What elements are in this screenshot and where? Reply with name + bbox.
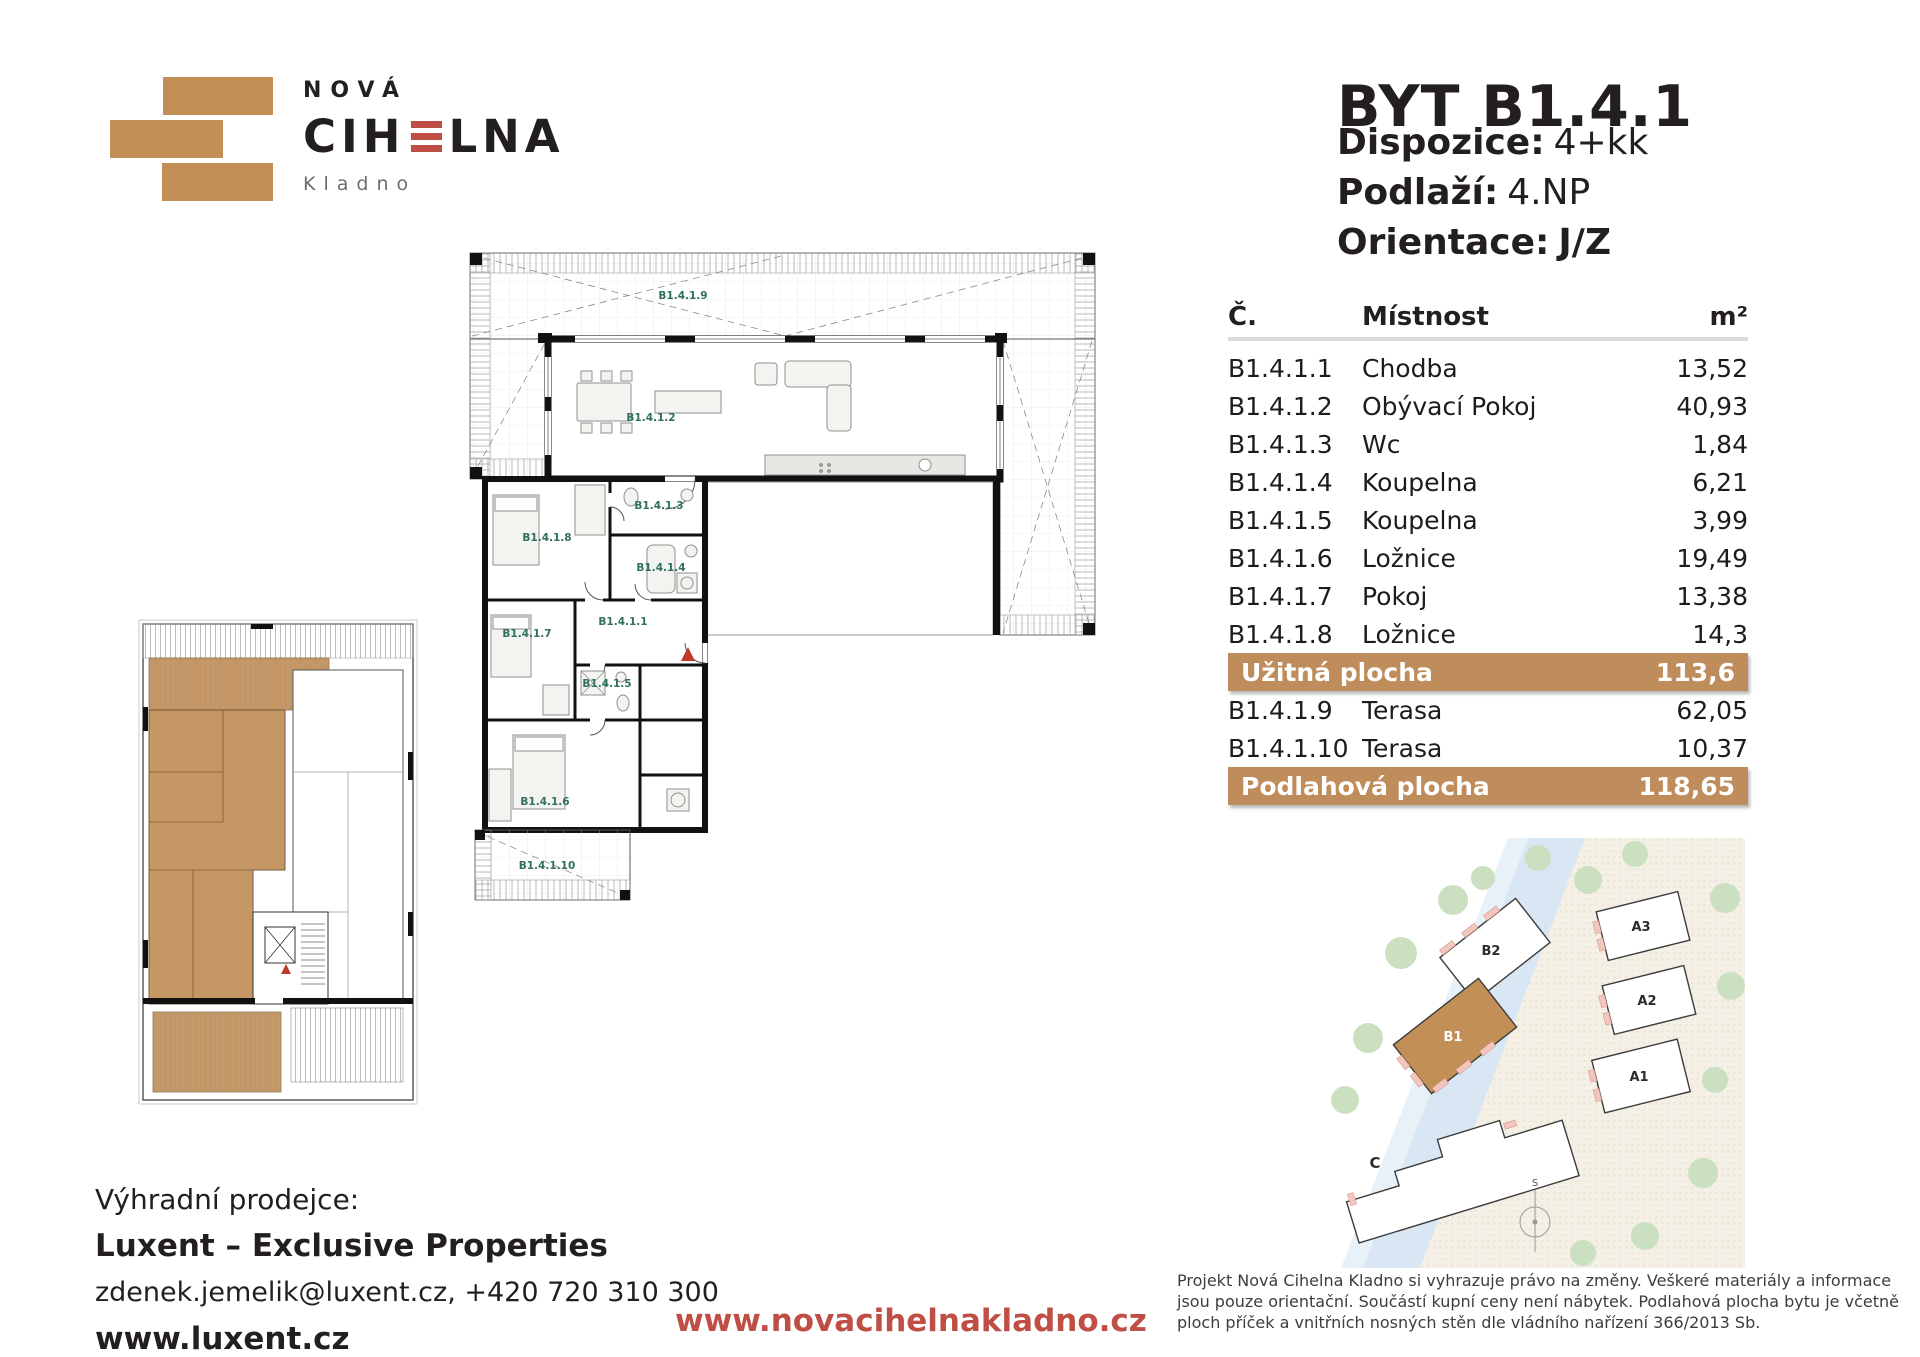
table-header: Č. Místnost m² bbox=[1228, 296, 1748, 332]
table-row: B1.4.1.10Terasa10,37 bbox=[1228, 729, 1748, 767]
area-table: Č. Místnost m² B1.4.1.1Chodba13,52 B1.4.… bbox=[1228, 296, 1748, 805]
table-row: B1.4.1.2Obývací Pokoj40,93 bbox=[1228, 387, 1748, 425]
col-area: m² bbox=[1636, 302, 1748, 332]
main-floorplan: B1.4.1.9 B1.4.1.2 B1.4.1.8 B1.4.1.3 B1.4… bbox=[455, 245, 1105, 915]
seller-website-link[interactable]: www.luxent.cz bbox=[95, 1321, 350, 1357]
building-label: A3 bbox=[1631, 920, 1650, 935]
logo-nova: NOVÁ bbox=[303, 78, 703, 103]
disclaimer-text: Projekt Nová Cihelna Kladno si vyhrazuje… bbox=[1177, 1270, 1915, 1333]
table-row: B1.4.1.1Chodba13,52 bbox=[1228, 349, 1748, 387]
room-label: B1.4.1.1 bbox=[598, 616, 647, 628]
table-row: B1.4.1.4Koupelna6,21 bbox=[1228, 463, 1748, 501]
logo-brand: CIH LNA bbox=[303, 110, 703, 163]
table-separator bbox=[1228, 337, 1748, 341]
unit-locator-plan bbox=[133, 612, 423, 1112]
building-label: C bbox=[1369, 1154, 1380, 1172]
building-label: B2 bbox=[1482, 944, 1501, 959]
logo-bricks-icon bbox=[110, 77, 276, 201]
table-row: B1.4.1.3Wc1,84 bbox=[1228, 425, 1748, 463]
seller-intro: Výhradní prodejce: bbox=[95, 1183, 719, 1216]
logo-brand-post: LNA bbox=[448, 110, 564, 163]
room-label: B1.4.1.3 bbox=[634, 500, 683, 512]
spec-orientace: Orientace:J/Z bbox=[1337, 222, 1648, 272]
project-website-link[interactable]: www.novacihelnakladno.cz bbox=[675, 1303, 1147, 1339]
seller-block: Výhradní prodejce: Luxent – Exclusive Pr… bbox=[95, 1183, 719, 1357]
usable-area-value: 113,6 bbox=[1656, 658, 1735, 687]
table-row: B1.4.1.9Terasa62,05 bbox=[1228, 691, 1748, 729]
room-label: B1.4.1.8 bbox=[522, 532, 571, 544]
room-label: B1.4.1.4 bbox=[636, 562, 685, 574]
room-label: B1.4.1.2 bbox=[626, 412, 675, 424]
building-label: A1 bbox=[1629, 1070, 1648, 1085]
seller-contact-link[interactable]: zdenek.jemelik@luxent.cz, +420 720 310 3… bbox=[95, 1277, 719, 1308]
spec-list: Dispozice:4+kk Podlaží:4.NP Orientace:J/… bbox=[1337, 122, 1648, 272]
logo: NOVÁ CIH LNA Kladno bbox=[303, 78, 703, 195]
room-label: B1.4.1.9 bbox=[658, 290, 707, 302]
building-label: B1 bbox=[1444, 1030, 1463, 1045]
room-label: B1.4.1.6 bbox=[520, 796, 569, 808]
logo-e-bars-icon bbox=[411, 119, 442, 155]
col-room: Místnost bbox=[1362, 302, 1636, 332]
floor-area-band: Podlahová plocha 118,65 bbox=[1228, 767, 1748, 805]
logo-brand-pre: CIH bbox=[303, 110, 405, 163]
spec-dispozice: Dispozice:4+kk bbox=[1337, 122, 1648, 172]
page: { "logo": { "line1": "NOVÁ", "brand_pre"… bbox=[0, 0, 1920, 1353]
usable-area-band: Užitná plocha 113,6 bbox=[1228, 653, 1748, 691]
floor-area-value: 118,65 bbox=[1639, 772, 1735, 801]
building-label: A2 bbox=[1637, 994, 1656, 1009]
svg-text:S: S bbox=[1532, 1178, 1538, 1189]
table-row: B1.4.1.5Koupelna3,99 bbox=[1228, 501, 1748, 539]
room-label: B1.4.1.10 bbox=[519, 860, 576, 872]
table-row: B1.4.1.7Pokoj13,38 bbox=[1228, 577, 1748, 615]
table-row: B1.4.1.8Ložnice14,3 bbox=[1228, 615, 1748, 653]
site-plan: B2 B1 A3 A2 A1 C S bbox=[1283, 838, 1745, 1268]
room-label: B1.4.1.7 bbox=[502, 628, 551, 640]
col-code: Č. bbox=[1228, 302, 1362, 332]
logo-city: Kladno bbox=[303, 173, 703, 195]
table-row: B1.4.1.6Ložnice19,49 bbox=[1228, 539, 1748, 577]
room-label: B1.4.1.5 bbox=[582, 678, 631, 690]
spec-podlazi: Podlaží:4.NP bbox=[1337, 172, 1648, 222]
seller-name: Luxent – Exclusive Properties bbox=[95, 1228, 719, 1264]
